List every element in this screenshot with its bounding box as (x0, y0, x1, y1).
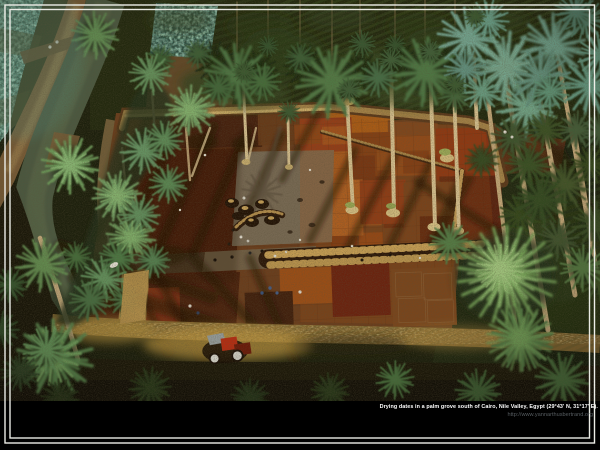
svg-text:http://www.yannarthusbertrand.: http://www.yannarthusbertrand.org (507, 412, 593, 418)
svg-text:Drying dates in a palm grove s: Drying dates in a palm grove south of Ca… (380, 404, 599, 410)
